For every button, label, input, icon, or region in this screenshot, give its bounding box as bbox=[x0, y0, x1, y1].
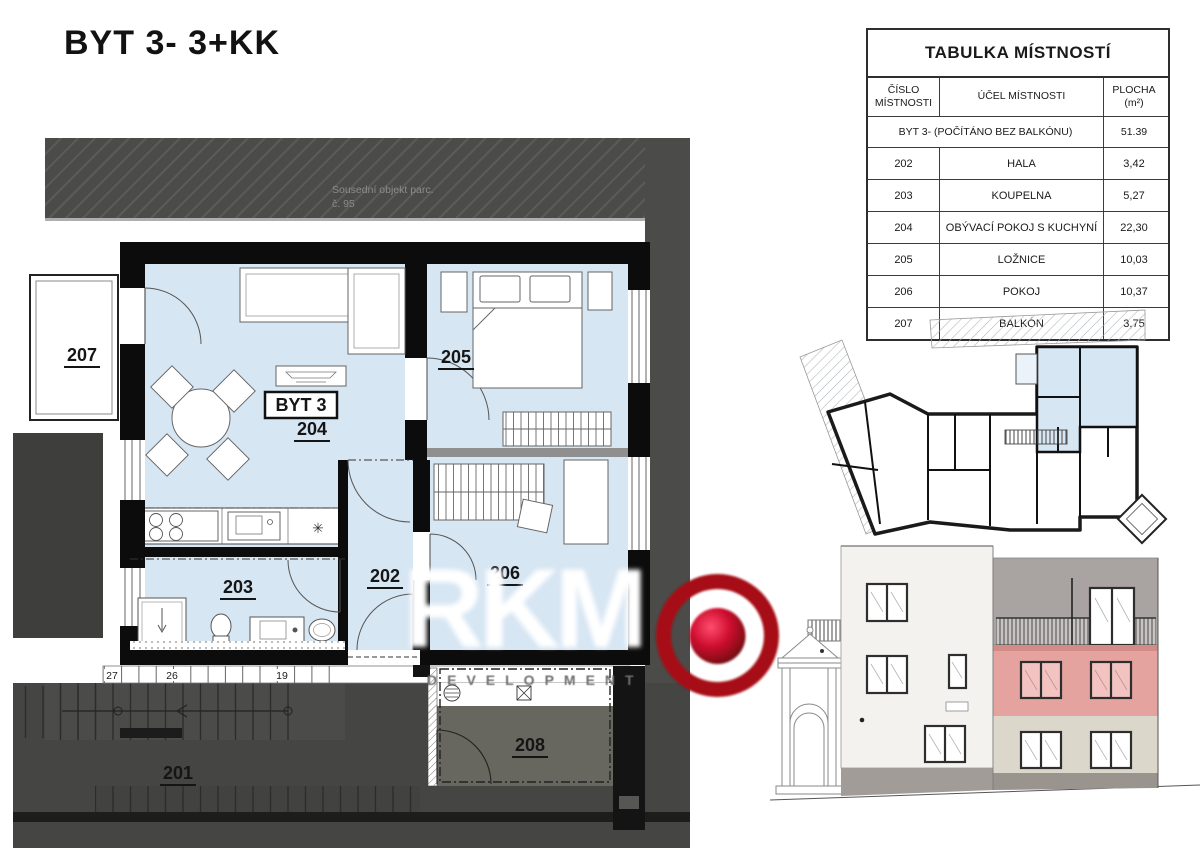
facade-right-building bbox=[993, 546, 1158, 790]
svg-text:204: 204 bbox=[297, 419, 327, 439]
dim-19: 19 bbox=[276, 670, 288, 682]
cell-purpose: OBÝVACÍ POKOJ S KUCHYNÍ bbox=[940, 212, 1104, 243]
header-room-area: PLOCHA(m²) bbox=[1104, 78, 1164, 116]
table-summary-row: BYT 3- (POČÍTÁNO BEZ BALKÓNU) 51.39 bbox=[868, 117, 1168, 148]
cell-purpose: HALA bbox=[940, 148, 1104, 179]
svg-text:BYT 3: BYT 3 bbox=[275, 395, 326, 415]
building-elevation bbox=[770, 538, 1200, 838]
neighbor-band: Sousední objekt parc. č. 95 bbox=[45, 138, 686, 221]
header-room-number: ČÍSLOMÍSTNOSTI bbox=[868, 78, 940, 116]
svg-text:205: 205 bbox=[441, 347, 471, 367]
table-row: 205 LOŽNICE 10,03 bbox=[868, 244, 1168, 276]
room-202-label: 202 bbox=[367, 566, 403, 588]
overview-floor-plan bbox=[780, 302, 1200, 550]
mini-stairs bbox=[1005, 430, 1067, 444]
adjacent-block bbox=[13, 433, 103, 638]
svg-text:201: 201 bbox=[163, 763, 193, 783]
cell-number: 203 bbox=[868, 180, 940, 211]
rkm-logo-subtitle: DEVELOPMENT bbox=[427, 672, 652, 688]
room-207-label: 207 bbox=[67, 345, 97, 365]
cell-purpose: KOUPELNA bbox=[940, 180, 1104, 211]
desk-icon bbox=[564, 460, 608, 544]
mini-balcony bbox=[1016, 354, 1037, 384]
facade-base bbox=[993, 773, 1158, 790]
room-201-label: 201 bbox=[160, 763, 196, 785]
header-room-purpose: ÚČEL MÍSTNOSTI bbox=[940, 78, 1104, 116]
cell-area: 5,27 bbox=[1104, 180, 1164, 211]
window-right-1 bbox=[628, 290, 650, 383]
nightstand-icon bbox=[441, 272, 467, 312]
kitchen-counter: ✳ bbox=[130, 508, 345, 544]
tv-board-icon bbox=[276, 366, 346, 386]
facade-sign bbox=[946, 702, 968, 711]
room-205-label: 205 bbox=[438, 347, 474, 369]
cell-area: 3,42 bbox=[1104, 148, 1164, 179]
page: BYT 3- 3+KK TABULKA MÍSTNOSTÍ ČÍSLOMÍSTN… bbox=[0, 0, 1200, 848]
room-203-label: 203 bbox=[220, 577, 256, 599]
floor-plan: Sousední objekt parc. č. 95 bbox=[0, 130, 710, 848]
summary-label: BYT 3- (POČÍTÁNO BEZ BALKÓNU) bbox=[868, 117, 1104, 147]
cell-number: 205 bbox=[868, 244, 940, 275]
cell-area: 10,03 bbox=[1104, 244, 1164, 275]
svg-text:203: 203 bbox=[223, 577, 253, 597]
cell-area: 22,30 bbox=[1104, 212, 1164, 243]
highlighted-floor bbox=[993, 645, 1158, 716]
facade-lower-floor bbox=[993, 716, 1158, 773]
room-204-label: 204 bbox=[294, 419, 330, 441]
nightstand-icon bbox=[588, 272, 612, 310]
wall-notch bbox=[619, 796, 639, 809]
cell-purpose: LOŽNICE bbox=[940, 244, 1104, 275]
boiler-icon: ✳ bbox=[312, 520, 324, 536]
svg-text:202: 202 bbox=[370, 566, 400, 586]
room-table-header: ČÍSLOMÍSTNOSTI ÚČEL MÍSTNOSTI PLOCHA(m²) bbox=[868, 78, 1168, 117]
facade-left-building bbox=[841, 546, 993, 796]
dim-27: 27 bbox=[106, 670, 118, 682]
window-right-2 bbox=[628, 457, 650, 550]
summary-area: 51.39 bbox=[1104, 117, 1164, 147]
page-title: BYT 3- 3+KK bbox=[64, 24, 280, 63]
street-hatch bbox=[930, 310, 1145, 348]
window-left-1 bbox=[120, 440, 145, 500]
rkm-logo-text: RKM bbox=[403, 551, 641, 671]
cell-number: 204 bbox=[868, 212, 940, 243]
apartment-label-box: BYT 3 bbox=[265, 392, 337, 418]
svg-text:č. 95: č. 95 bbox=[332, 198, 355, 210]
washbasin-icon bbox=[309, 619, 335, 641]
facade-lamp bbox=[860, 718, 865, 723]
room-table-title: TABULKA MÍSTNOSTÍ bbox=[868, 30, 1168, 78]
table-row: 204 OBÝVACÍ POKOJ S KUCHYNÍ 22,30 bbox=[868, 212, 1168, 244]
balcony-207: 207 bbox=[30, 275, 118, 420]
room-208-label: 208 bbox=[515, 735, 545, 755]
table-row: 202 HALA 3,42 bbox=[868, 148, 1168, 180]
toilet-icon bbox=[211, 614, 231, 638]
rkm-logo-target-icon bbox=[645, 563, 790, 708]
table-row: 203 KOUPELNA 5,27 bbox=[868, 180, 1168, 212]
neighbor-note: Sousední objekt parc. bbox=[332, 184, 434, 196]
room-table: TABULKA MÍSTNOSTÍ ČÍSLOMÍSTNOSTI ÚČEL MÍ… bbox=[866, 28, 1170, 341]
cell-number: 202 bbox=[868, 148, 940, 179]
chair-icon bbox=[517, 499, 552, 533]
partition bbox=[427, 448, 628, 457]
dim-26: 26 bbox=[166, 670, 178, 682]
